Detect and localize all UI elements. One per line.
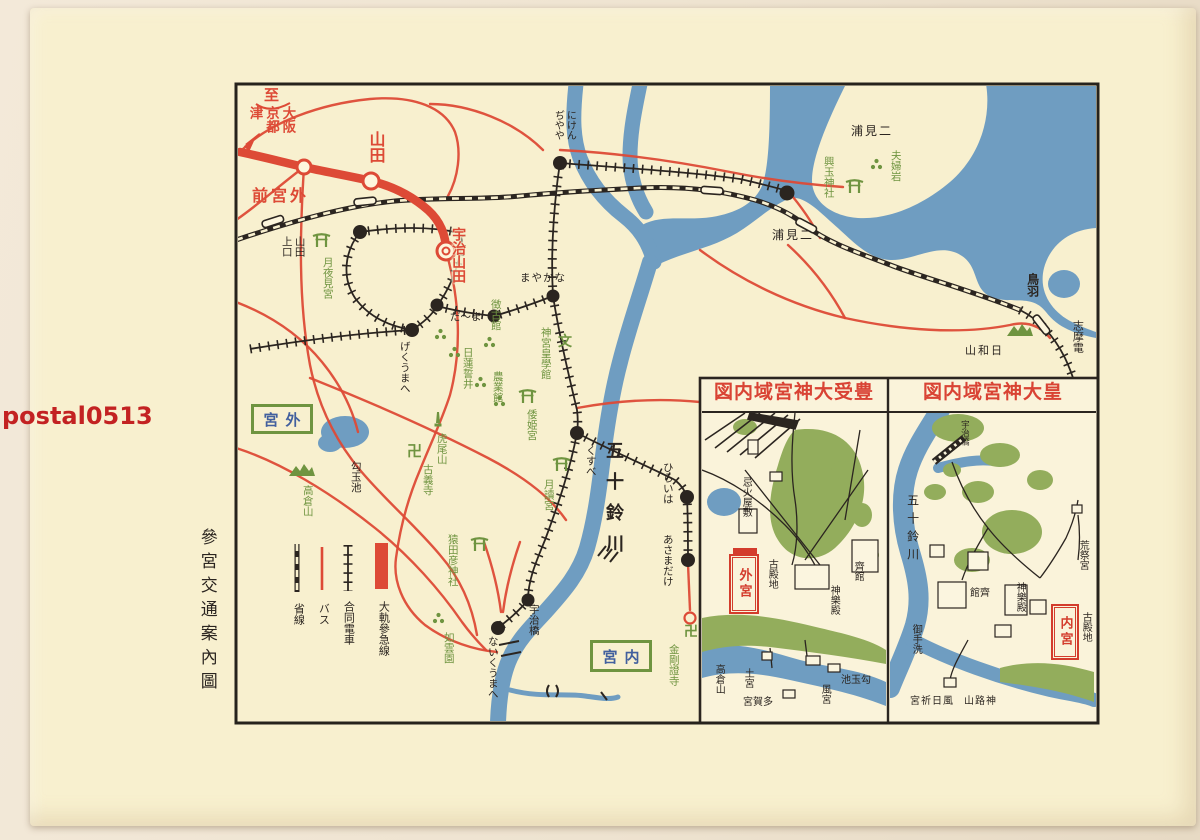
sta-gekuumae-kana: げくうまへ [398,341,411,394]
sta-hiraiwa: ひらいは [661,462,674,504]
sta-naikumae: ないくうまへ [486,636,499,699]
ins-l-tsuchinomiya: 土宮 [741,668,753,688]
sta-asamadake: あさまだけ [661,534,674,587]
sta-futamiura: 浦見二 [772,228,814,243]
ins-l-saikan: 齊館 [851,561,863,581]
dest-to: 至 [264,86,279,104]
box-geku-inset: 外宮 [729,554,759,614]
temple-kogiji: 古義寺 [421,464,434,496]
mtn-takakurayama: 高倉山 [301,485,314,517]
sta-dama: だ〜ま [450,311,482,324]
postcard-scan: postal0513參宮交通案內圖大軌參急線合同電車バス省線至大阪 京都 津山田… [0,0,1200,840]
shrine-tsukiyomi-naiku: 月讀宮 [542,479,555,511]
ins-l-kazenomiya: 風宮 [818,684,830,704]
ins-l-taganomiya: 宮賀多 [743,697,773,709]
river-isuzu-label: 五十鈴川 [602,441,624,565]
legend-godo-densha: 合同電車 [342,601,355,645]
poi-nogyokan: 農業館 [491,371,504,403]
box-naiku: 宮内 [590,640,652,672]
ins-r-kazahinominomiya: 宮祈日風 [910,696,954,708]
shrine-okitama: 興玉神社 [822,156,835,198]
sta-ujiyamada: 宇治山田 [449,227,466,283]
box-geku-inset-label: 外宮 [732,557,756,611]
poi-chokokan: 徴古館 [489,299,502,331]
coast-futamiura: 浦見二 [851,124,893,139]
ins-l-takakurayama: 高倉山 [712,664,724,694]
ins-l-kodenchi: 古殿地 [765,559,777,589]
sta-kusube: くすべ [584,445,597,477]
sta-nakayama: まやかな [520,272,566,285]
legend-bus: バス [317,603,330,625]
icon-school-mark: 文 [558,334,572,351]
sta-yamada-kamiguchi: 山田 上口 [280,236,306,257]
mtn-hiyoriyama: 山和日 [965,344,1004,357]
ins-r-mitarashi: 御手洗 [909,624,921,654]
legend-daiki-sankyu-line: 大軌參急線 [377,601,390,656]
bridge-ujibashi: 宇治橋 [527,604,540,636]
ins-r-kaguraden: 神樂殿 [1013,582,1025,612]
poi-toraoyama: 虎尾山 [435,433,448,465]
shrine-tsukiyominomiya: 月夜見宮 [321,257,334,299]
manji-kogiji: 卍 [407,442,422,460]
sta-yamada-daiki: 山田 [366,131,386,163]
shrine-sarutahiko: 猿田彦神社 [446,534,459,587]
box-naiku-inset: 内宮 [1051,604,1079,660]
legend-shosen: 省線 [292,603,305,625]
ins-l-imibi-yashiki: 忌火屋敷 [739,477,751,517]
ins-r-kamijiyama: 山路神 [964,696,997,708]
dest-osaka-kyoto-tsu: 大阪 京都 津 [246,106,295,133]
watermark: postal0513 [2,402,153,431]
pond-magatamaike: 勾玉池 [349,461,362,493]
garden-jounen: 如雲園 [442,632,455,664]
ins-l-magatamaike: 池玉勾 [841,675,871,687]
ins-l-kaguraden: 神樂殿 [827,585,839,615]
ins-r-ujibashi: 宇治橋 [959,420,969,446]
ins-r-kodenchi: 古殿地 [1079,612,1091,642]
manji-kongoshoji: 卍 [684,624,698,641]
sta-gekumae: 前宮外 [252,186,309,206]
temple-kongoshoji: 金剛證寺 [667,644,680,686]
sta-toba: 鳥羽 [1025,273,1040,297]
poi-meotoiwa: 夫婦岩 [889,150,902,182]
box-naiku-inset-label: 内宮 [1054,607,1076,657]
ins-r-saikan: 館齊 [970,588,990,600]
inset-title-kotai-jingu: 図内域宮神大皇 [923,381,1063,404]
poi-jingu-kogakkan: 神宮皇學館 [539,327,552,380]
label-layer: postal0513參宮交通案內圖大軌參急線合同電車バス省線至大阪 京都 津山田… [0,0,1200,840]
shrine-yamatohime: 倭姫宮 [525,409,538,441]
map-doc-title: 參宮交通案內圖 [196,528,217,696]
inset-title-toyouke-daijingu: 図内域宮神大受豊 [714,381,874,404]
sta-nikenjaya: にけん ぢやや [551,110,575,140]
poi-nichiren-well: 日蓮誓井 [461,347,474,389]
ins-r-aramatsurinomiya: 荒祭宮 [1076,540,1088,570]
box-geku: 宮外 [251,404,313,434]
line-shimaden: 志摩電 [1071,320,1084,353]
ins-r-isuzugawa: 五十鈴川 [905,494,920,566]
